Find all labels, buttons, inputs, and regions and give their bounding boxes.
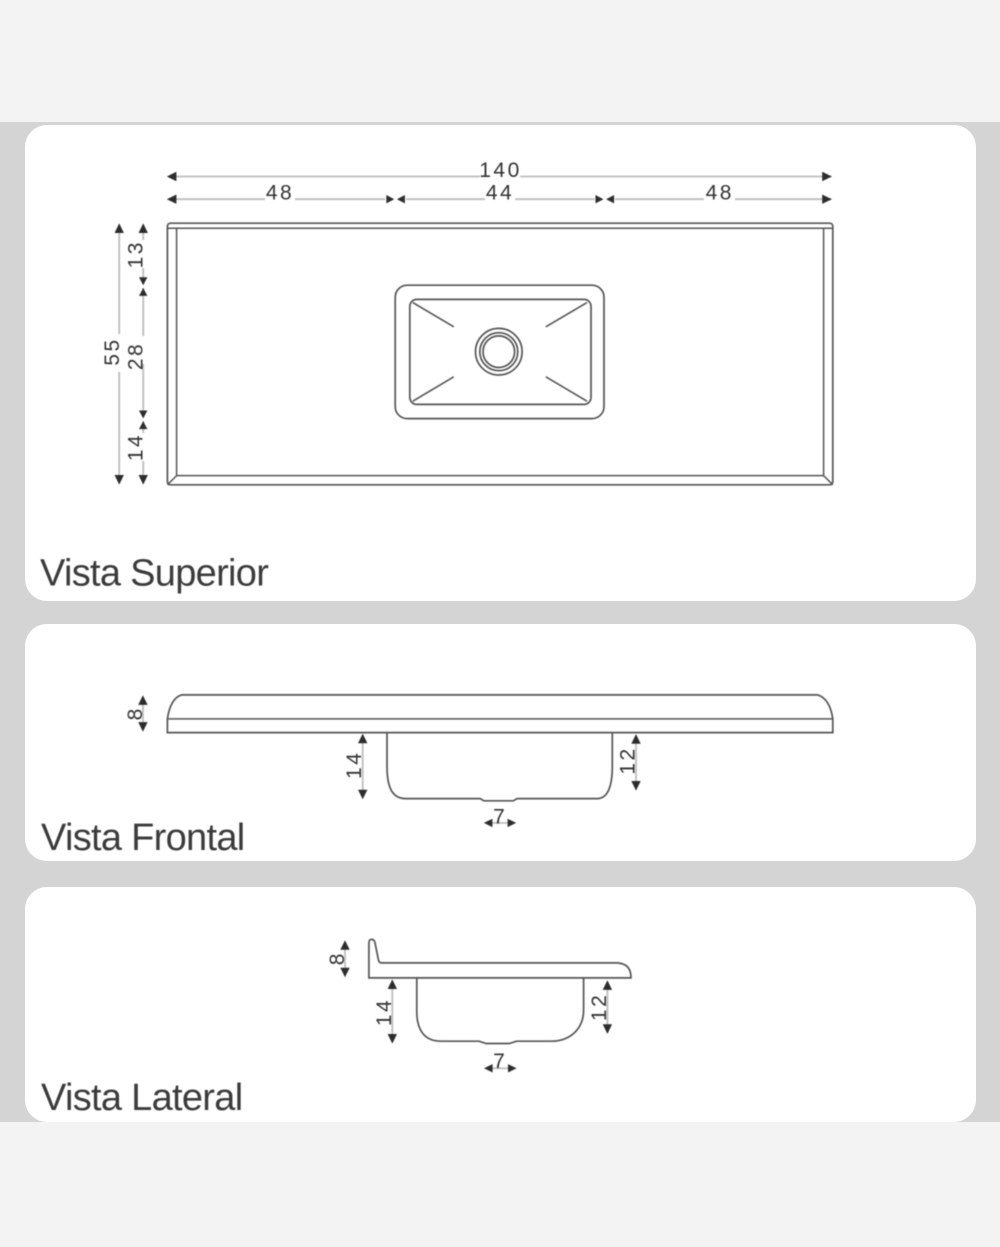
svg-text:8: 8 xyxy=(326,951,349,965)
svg-text:14: 14 xyxy=(343,751,366,779)
svg-text:Vista Lateral: Vista Lateral xyxy=(41,1077,242,1119)
svg-text:8: 8 xyxy=(124,706,147,720)
svg-text:48: 48 xyxy=(706,182,734,205)
svg-text:Vista Superior: Vista Superior xyxy=(40,553,269,595)
svg-text:14: 14 xyxy=(125,433,148,461)
svg-text:48: 48 xyxy=(266,182,294,205)
svg-text:Vista Frontal: Vista Frontal xyxy=(41,817,245,859)
svg-text:55: 55 xyxy=(101,337,124,365)
svg-text:7: 7 xyxy=(493,805,507,828)
svg-text:44: 44 xyxy=(486,182,514,205)
svg-text:28: 28 xyxy=(125,342,148,370)
svg-text:13: 13 xyxy=(125,240,148,268)
svg-text:14: 14 xyxy=(373,998,396,1026)
svg-text:7: 7 xyxy=(493,1050,507,1073)
svg-text:12: 12 xyxy=(588,993,611,1021)
svg-text:12: 12 xyxy=(617,746,640,774)
svg-text:140: 140 xyxy=(479,159,522,182)
